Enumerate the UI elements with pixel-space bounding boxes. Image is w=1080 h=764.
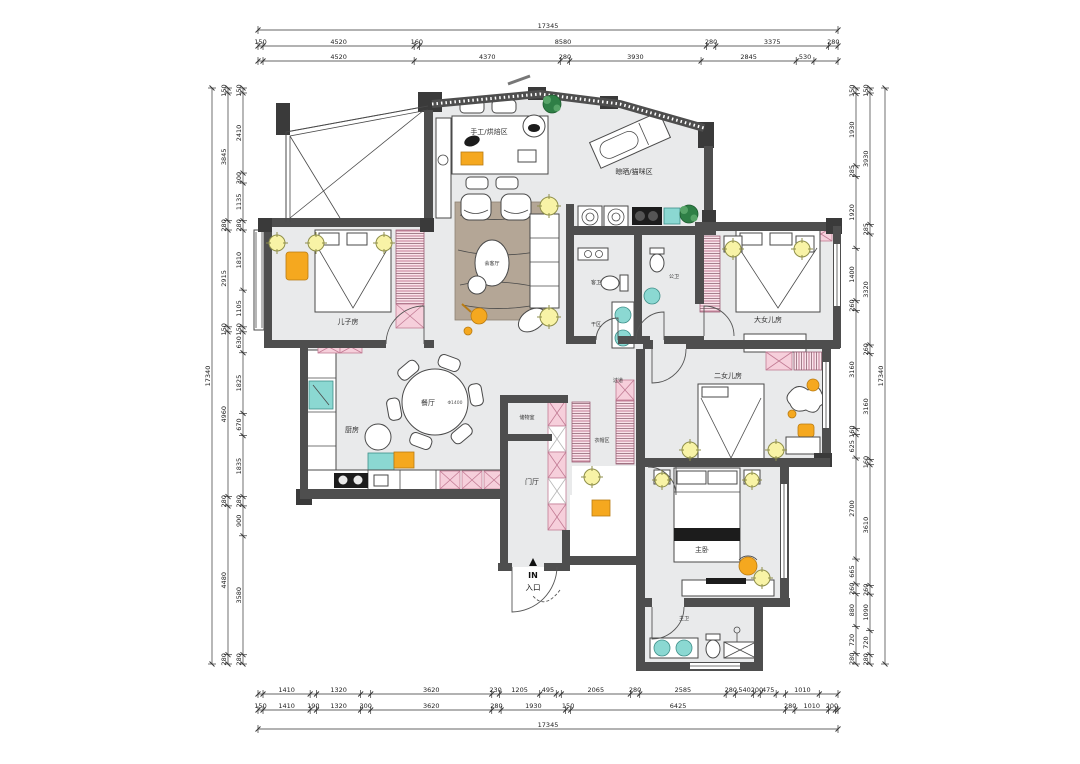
dimension-label: 900: [235, 515, 243, 527]
dimension-label: 2065: [588, 686, 605, 694]
armchair-icon: [501, 194, 531, 220]
dimension-label: 1010: [794, 686, 811, 694]
ceiling-light-icon: [308, 235, 324, 251]
desk-icon: [786, 437, 820, 454]
dimension-label: 1835: [235, 458, 243, 475]
dryer-icon: [604, 206, 628, 228]
dimension-label: 280: [862, 653, 870, 665]
room-label-public-bath: 公卫: [669, 274, 679, 280]
ceiling-light-icon: [768, 442, 784, 458]
dimension-label: 260: [848, 299, 856, 311]
stove-icon: [334, 473, 368, 488]
dimension-label: 150: [254, 38, 266, 46]
dimension-label: 1930: [848, 121, 856, 138]
ceiling-light-icon: [655, 473, 669, 487]
dimension-label: 495: [542, 686, 554, 694]
dimension-label: 1410: [278, 686, 295, 694]
toilet-icon: [650, 248, 664, 272]
dimension-label: 1090: [862, 604, 870, 621]
wardrobe-icon: [794, 352, 824, 370]
dimension-label: 160: [411, 38, 423, 46]
dimension-label: 8580: [555, 38, 572, 46]
floor-plan-page: IN 入口 儿子房 手工/烘焙区 会客厅 晾晒/猫咪区 大女儿房 二女儿房 主卧…: [0, 0, 1080, 764]
dimension-label: 280: [490, 702, 502, 710]
ceiling-light-icon: [745, 473, 759, 487]
dimension-label: 200: [826, 702, 838, 710]
dimension-label: 630: [235, 336, 243, 348]
room-label-dry-area: 干区: [591, 322, 601, 328]
room-label-master: 主卧: [695, 545, 709, 554]
room-label-foyer: 门厅: [525, 477, 539, 486]
dimension-label: 3930: [627, 53, 644, 61]
dimension-label: 260: [862, 584, 870, 596]
dimension-label: 280: [725, 686, 737, 694]
ceiling-light-icon: [269, 235, 285, 251]
sofa-icon: [530, 214, 559, 308]
dimension-label: 1105: [235, 300, 243, 317]
laundry-sink: [664, 208, 680, 224]
nightstand-icon: [286, 252, 308, 280]
dimension-label: 150: [220, 323, 228, 335]
cooktop-icon: [632, 207, 662, 225]
room-label-dining: 餐厅: [421, 398, 435, 407]
dimension-label: 285: [862, 223, 870, 235]
dimension-label: 3320: [862, 281, 870, 298]
dimension-label: 1920: [848, 204, 856, 221]
dimension-label: 670: [235, 418, 243, 430]
dimension-label: 3580: [235, 587, 243, 604]
room-label-daughter2: 二女儿房: [714, 371, 742, 380]
ceiling-light-icon: [540, 308, 558, 326]
ceiling-light-icon: [794, 241, 810, 257]
dimension-label: 1135: [235, 194, 243, 211]
plant-icon: [543, 95, 561, 113]
dimension-label: 625: [848, 440, 856, 452]
ceiling-light-icon: [682, 442, 698, 458]
washer-icon: [578, 206, 602, 228]
dimension-label: 4520: [330, 53, 347, 61]
dimension-label: 280: [220, 653, 228, 665]
sink-icon: [654, 640, 670, 656]
dimension-label: 280: [220, 219, 228, 231]
dimension-label: 280: [559, 53, 571, 61]
ceiling-light-icon: [754, 570, 770, 586]
dimension-label: 280: [235, 653, 243, 665]
dimension-label: 720: [848, 634, 856, 646]
room-label-laundry-cat: 晾晒/猫咪区: [615, 167, 652, 176]
dimension-label: 17340: [877, 366, 885, 387]
dimension-label: 280: [705, 38, 717, 46]
dimension-label: 3160: [848, 361, 856, 378]
dimension-label: 280: [629, 686, 641, 694]
dimension-label: 880: [848, 604, 856, 616]
dimension-label: 17345: [538, 22, 559, 30]
dimension-label: 300: [235, 172, 243, 184]
dimension-label: 4520: [330, 38, 347, 46]
room-label-corridor: 过道: [613, 377, 623, 384]
dimension-label: 150: [254, 702, 266, 710]
dimension-label: 150: [562, 702, 574, 710]
room-label-kitchen: 厨房: [345, 425, 359, 434]
dimension-label: 280: [784, 702, 796, 710]
dimension-label: 665: [848, 565, 856, 577]
dimension-label: 3610: [862, 517, 870, 534]
bed-icon: [698, 384, 764, 462]
chair-icon: [739, 557, 757, 575]
dimension-label: 260: [862, 343, 870, 355]
room-label-craft: 手工/烘焙区: [470, 127, 507, 136]
dimension-label: 17345: [538, 721, 559, 729]
dimension-label: 280: [235, 219, 243, 231]
wardrobe-icon: [616, 400, 634, 464]
stool-icon: [365, 424, 391, 450]
dimension-label: 150: [220, 84, 228, 96]
dining-diameter-label: Φ1400: [448, 400, 463, 406]
dimension-label: 2915: [220, 270, 228, 287]
dimension-label: 260: [848, 583, 856, 595]
room-label-guest-bath: 客卫: [591, 279, 601, 286]
dimension-label: 530: [799, 53, 811, 61]
dimension-label: 3620: [423, 702, 440, 710]
dimension-label: 280: [235, 495, 243, 507]
ceiling-light-icon: [540, 197, 558, 215]
toilet-icon: [706, 634, 720, 658]
dimension-label: 475: [762, 686, 774, 694]
dimension-label: 4480: [220, 572, 228, 589]
dimension-label: 3930: [862, 150, 870, 167]
dimension-label: 3845: [220, 149, 228, 166]
dimension-label: 160: [862, 456, 870, 468]
dimension-label: 280: [827, 38, 839, 46]
sink-icon: [644, 288, 660, 304]
room-label-master-bath: 主卫: [679, 615, 689, 622]
dimension-label: 190: [307, 702, 319, 710]
cabinet: [436, 118, 451, 218]
dimension-label: 2845: [740, 53, 757, 61]
sink-icon: [615, 307, 631, 323]
toilet-icon: [601, 275, 628, 291]
dimension-label: 2410: [235, 125, 243, 142]
entry-in-label: IN: [528, 571, 538, 580]
dimension-label: 1825: [235, 375, 243, 392]
dimension-label: 150: [235, 323, 243, 335]
bed-runner: [674, 528, 740, 541]
room-label-cloak: 衣帽区: [594, 437, 609, 444]
room-label-son: 儿子房: [338, 317, 359, 326]
dimension-label: 1320: [330, 686, 347, 694]
room-label-storage: 储物室: [519, 414, 534, 421]
ceiling-light-icon: [584, 469, 600, 485]
dimension-label: 1930: [525, 702, 542, 710]
dimension-label: 1010: [803, 702, 820, 710]
room-label-daughter1: 大女儿房: [754, 315, 782, 324]
floor-plan-canvas: IN 入口 儿子房 手工/烘焙区 会客厅 晾晒/猫咪区 大女儿房 二女儿房 主卧…: [0, 0, 1080, 764]
ceiling-light-icon: [376, 235, 392, 251]
dimension-label: 17340: [204, 366, 212, 387]
sink-icon: [676, 640, 692, 656]
dimension-label: 4370: [479, 53, 496, 61]
dimension-label: 1400: [848, 266, 856, 283]
box-icon: [461, 152, 483, 165]
dimension-label: 540: [738, 686, 750, 694]
dimension-label: 280: [848, 653, 856, 665]
dimension-label: 3160: [862, 398, 870, 415]
dimension-label: 285: [848, 165, 856, 177]
armchair-icon: [461, 194, 491, 220]
box-icon: [592, 500, 610, 516]
dimension-label: 150: [862, 84, 870, 96]
room-label-reception: 会客厅: [484, 260, 499, 267]
dimension-label: 2700: [848, 500, 856, 517]
chair-icon: [798, 424, 814, 437]
dimension-label: 6425: [670, 702, 687, 710]
dimension-label: 300: [359, 702, 371, 710]
dimension-label: 720: [862, 636, 870, 648]
dimension-label: 230: [489, 686, 501, 694]
wardrobe-icon: [396, 230, 424, 304]
dimension-label: 1410: [278, 702, 295, 710]
dimension-label: 1810: [235, 252, 243, 269]
dimension-label: 160: [848, 425, 856, 437]
dimension-label: 1205: [511, 686, 528, 694]
dimension-label: 1320: [330, 702, 347, 710]
dimension-label: 3375: [764, 38, 781, 46]
entry-label: 入口: [526, 583, 541, 592]
dimension-label: 280: [220, 495, 228, 507]
dimension-label: 4960: [220, 406, 228, 423]
box-icon: [394, 452, 414, 468]
dimension-label: 150: [848, 85, 856, 97]
wardrobe-icon: [572, 402, 590, 462]
ceiling-light-icon: [725, 241, 741, 257]
dimension-label: 150: [235, 84, 243, 96]
dimension-label: 3620: [423, 686, 440, 694]
plant-icon: [680, 205, 698, 223]
dimension-label: 2585: [675, 686, 692, 694]
